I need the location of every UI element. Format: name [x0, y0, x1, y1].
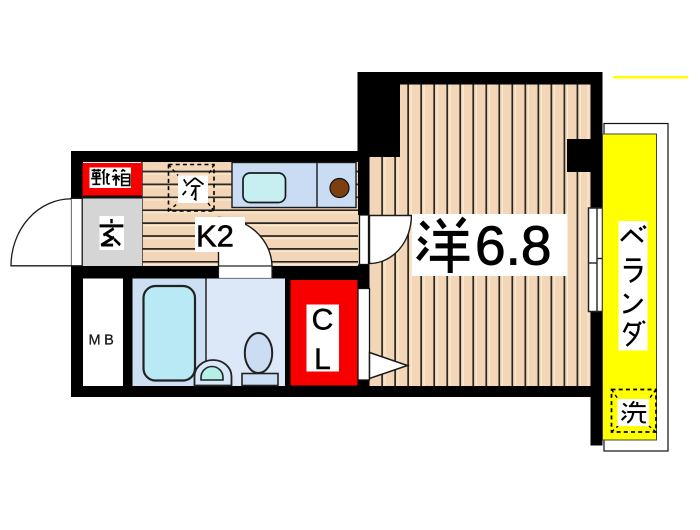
svg-text:6.8: 6.8 [475, 215, 551, 277]
svg-text:C: C [312, 304, 334, 337]
svg-text:K2: K2 [196, 219, 234, 254]
svg-text:MB: MB [89, 333, 118, 349]
svg-text:L: L [314, 343, 331, 376]
